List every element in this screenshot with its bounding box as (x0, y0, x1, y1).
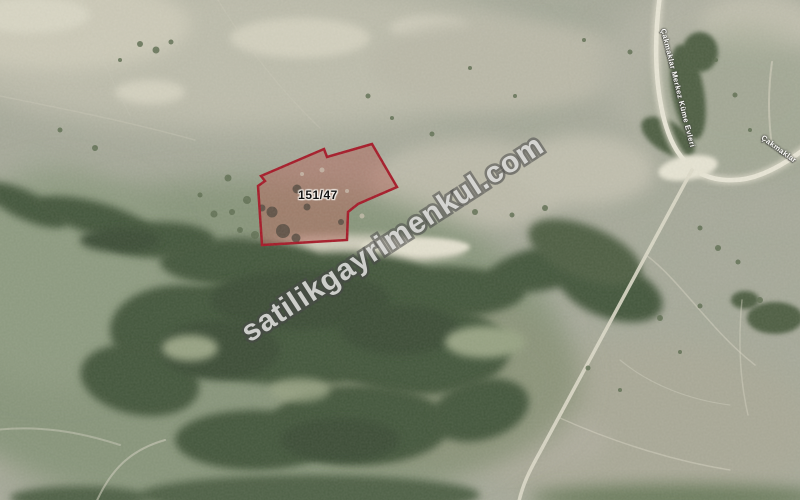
terrain-layer (0, 0, 800, 500)
parcel-number-label: 151/47 (298, 188, 338, 202)
satellite-map-image: satilikgayrimenkul.com satilikgayrimenku… (0, 0, 800, 500)
photo-grain-dark (0, 0, 800, 500)
